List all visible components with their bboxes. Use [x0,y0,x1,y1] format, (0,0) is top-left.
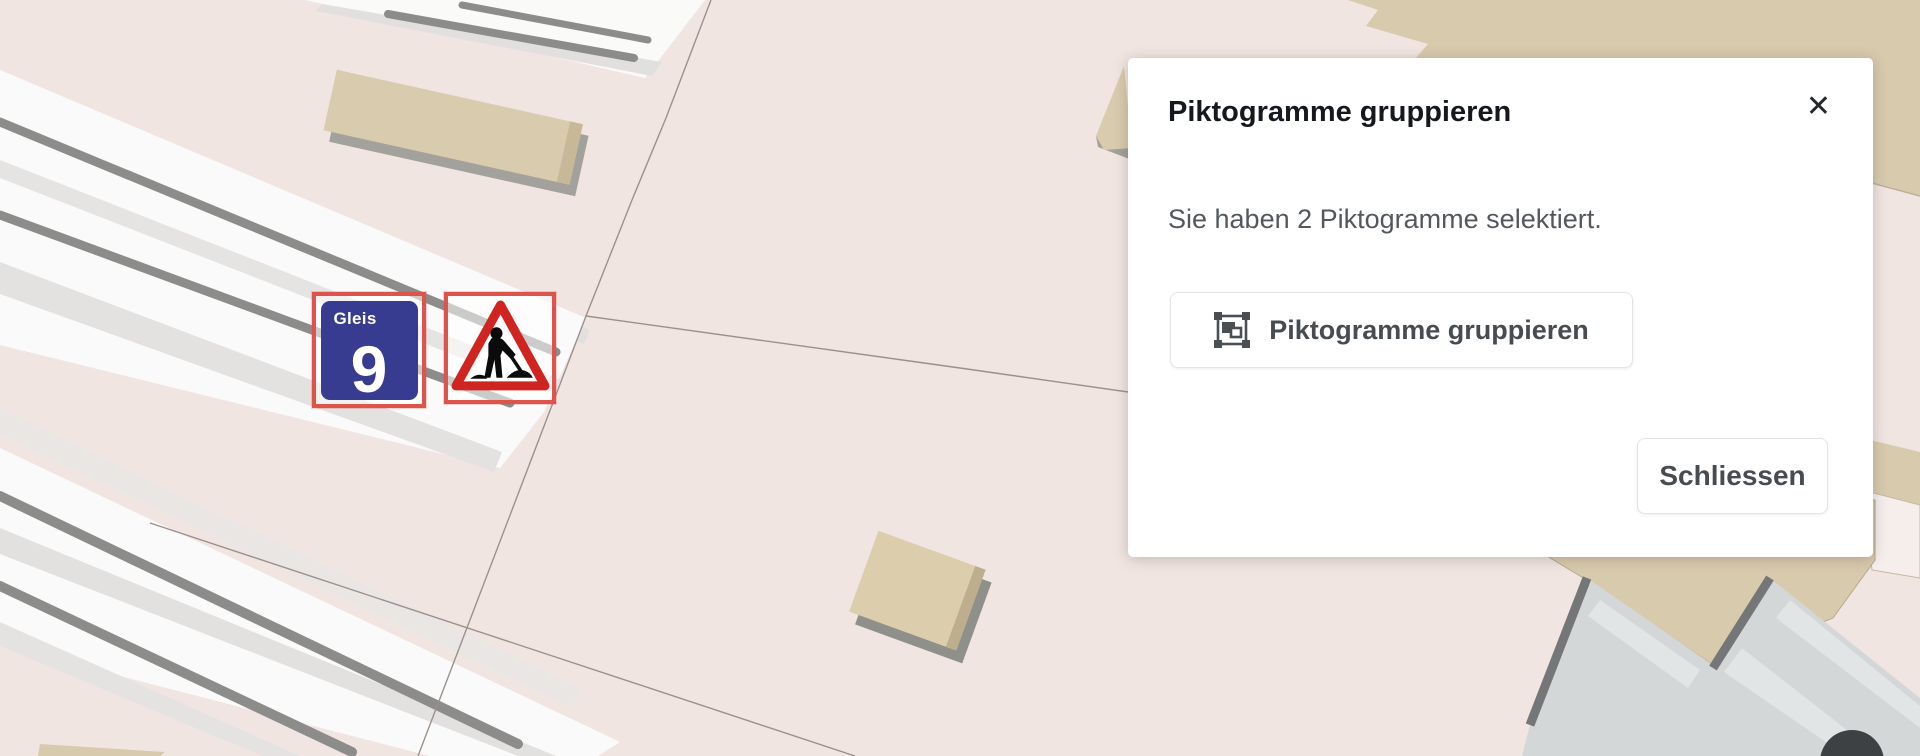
group-pictograms-dialog: Piktogramme gruppieren ✕ Sie haben 2 Pik… [1128,58,1873,557]
group-pictograms-button[interactable]: Piktogramme gruppieren [1170,292,1633,368]
group-selection-icon [1214,312,1250,348]
track-sign-number: 9 [321,336,418,402]
dialog-body-text: Sie haben 2 Piktogramme selektiert. [1168,204,1602,235]
group-button-label: Piktogramme gruppieren [1269,315,1589,346]
close-dialog-button[interactable]: Schliessen [1637,438,1828,514]
dialog-title: Piktogramme gruppieren [1168,96,1511,129]
track-sign-label: Gleis [334,309,377,329]
close-button-label: Schliessen [1659,460,1805,492]
roadworks-sign-icon [450,298,551,399]
selected-pictogram-track-sign[interactable]: Gleis 9 [312,292,426,408]
selected-pictogram-construction-sign[interactable] [444,292,556,404]
close-icon[interactable]: ✕ [1806,92,1831,122]
track-sign: Gleis 9 [321,301,418,400]
